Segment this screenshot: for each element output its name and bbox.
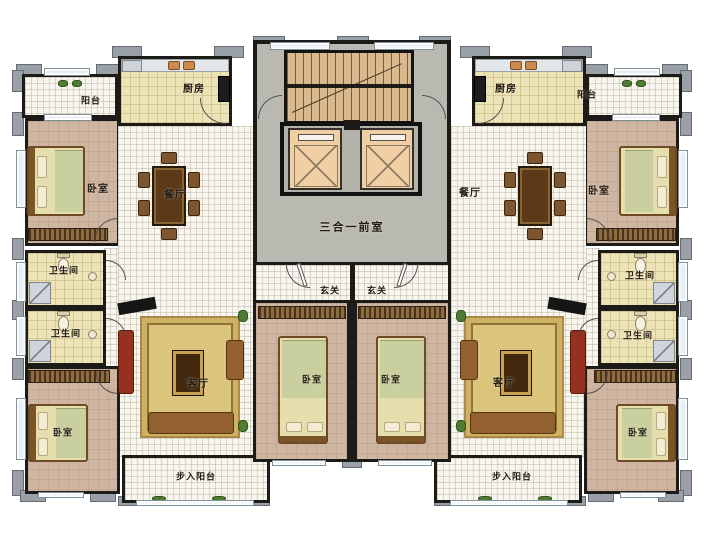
window (44, 114, 92, 121)
balcony-top-left (22, 74, 118, 118)
plant-icon (622, 80, 632, 87)
shower-icon (29, 282, 51, 304)
sofa (148, 412, 234, 434)
chair (504, 172, 516, 188)
sink-icon (607, 272, 616, 281)
window (612, 114, 660, 121)
sink-icon (88, 330, 97, 339)
room-label-bath-lower-right: 卫生间 (623, 333, 653, 342)
stair-mid-landing (286, 84, 412, 88)
chair (138, 172, 150, 188)
bed (27, 146, 85, 216)
plant-icon (238, 310, 248, 322)
room-label-bedroom-bottom-right: 卧室 (628, 430, 648, 439)
armchair (226, 340, 244, 380)
window (136, 500, 254, 506)
wall-pier (12, 358, 24, 380)
room-label-bath-lower-left: 卫生间 (51, 331, 81, 340)
room-label-balcony-top-right: 阳台 (577, 92, 597, 101)
elevator-door-slot (370, 134, 406, 141)
sink-icon (525, 61, 537, 70)
room-label-walkin-balcony-left: 步入阳台 (176, 474, 216, 483)
window (678, 150, 688, 208)
fridge-icon (122, 60, 142, 72)
chair (161, 228, 177, 240)
fridge-icon (562, 60, 582, 72)
wall-pier (680, 238, 692, 260)
chair (527, 152, 543, 164)
room-label-bedroom-top-left: 卧室 (87, 185, 109, 195)
elevator-x-icon (366, 145, 410, 187)
room-label-bath-upper-right: 卫生间 (625, 273, 655, 282)
armchair (460, 340, 478, 380)
coffee-table (500, 350, 532, 396)
window (614, 68, 660, 76)
elevator-left (288, 128, 342, 190)
toilet-tank (57, 253, 70, 258)
toilet-tank (634, 311, 647, 316)
chair (554, 200, 566, 216)
window (374, 42, 434, 50)
window (16, 262, 26, 302)
wardrobe (258, 306, 346, 319)
room-label-balcony-top-left: 阳台 (81, 98, 101, 107)
window (378, 460, 432, 466)
elevator-right (360, 128, 414, 190)
room-label-kitchen-left: 厨房 (183, 85, 205, 95)
bed (376, 336, 426, 444)
room-label-dining-left: 餐厅 (164, 191, 186, 201)
chair (554, 172, 566, 188)
dining-table (518, 166, 552, 226)
floor-plan-canvas: 三合一前室 阳台 厨房 卧室 餐厅 卫生间 卫生间 卧室 客厅 玄关 卧室 步入… (0, 0, 704, 549)
sink-icon (607, 330, 616, 339)
window (678, 316, 688, 356)
elevator-x-icon (294, 145, 338, 187)
elevator-door-slot (298, 134, 334, 141)
room-label-kitchen-right: 厨房 (495, 85, 517, 95)
sofa (118, 330, 134, 394)
plant-icon (456, 420, 466, 432)
window (620, 492, 666, 498)
room-label-bedroom-top-right: 卧室 (588, 187, 610, 197)
room-label-entry-right: 玄关 (367, 288, 387, 297)
plant-icon (72, 80, 82, 87)
shower-icon (653, 340, 675, 362)
chair (138, 200, 150, 216)
room-label-lobby: 三合一前室 (320, 222, 385, 233)
room-label-living-right: 客厅 (493, 379, 515, 389)
shower-icon (653, 282, 675, 304)
wall-pier (12, 238, 24, 260)
shaft-center-pillar (344, 120, 360, 130)
chair (527, 228, 543, 240)
sofa (470, 412, 556, 434)
plant-icon (58, 80, 68, 87)
chair (188, 200, 200, 216)
plant-icon (238, 420, 248, 432)
room-label-walkin-balcony-right: 步入阳台 (492, 474, 532, 483)
sink-icon (183, 61, 195, 70)
room-label-bedroom-center-left: 卧室 (302, 377, 322, 386)
bed (619, 146, 677, 216)
room-label-dining-right: 餐厅 (459, 189, 481, 199)
balcony-top-right (586, 74, 682, 118)
window (270, 42, 330, 50)
bed (278, 336, 328, 444)
sink-icon (168, 61, 180, 70)
party-wall (350, 300, 354, 462)
room-label-bedroom-bottom-left: 卧室 (53, 430, 73, 439)
plant-icon (456, 310, 466, 322)
sink-icon (88, 272, 97, 281)
toilet-icon (635, 316, 646, 331)
window (16, 150, 26, 208)
toilet-tank (57, 311, 70, 316)
room-label-living-left: 客厅 (187, 380, 209, 390)
window (678, 398, 688, 460)
window (450, 500, 568, 506)
window (272, 460, 326, 466)
plant-icon (636, 80, 646, 87)
window (38, 492, 84, 498)
room-label-bedroom-center-right: 卧室 (381, 377, 401, 386)
sink-icon (510, 61, 522, 70)
chair (188, 172, 200, 188)
window (16, 398, 26, 460)
shower-icon (29, 340, 51, 362)
wardrobe (358, 306, 446, 319)
chair (504, 200, 516, 216)
sofa (570, 330, 586, 394)
room-label-bath-upper-left: 卫生间 (49, 268, 79, 277)
window (16, 316, 26, 356)
window (44, 68, 90, 76)
window (678, 262, 688, 302)
chair (161, 152, 177, 164)
room-label-entry-left: 玄关 (320, 288, 340, 297)
party-wall (350, 262, 355, 304)
toilet-tank (634, 253, 647, 258)
wall-pier (680, 358, 692, 380)
